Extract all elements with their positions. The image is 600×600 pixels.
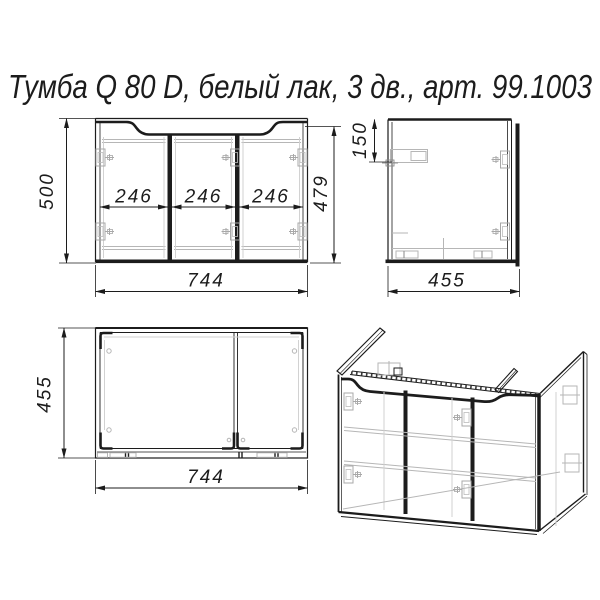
technical-drawing-page: Тумба Q 80 D, белый лак, 3 дв., арт. 99.… <box>0 0 600 600</box>
dim-top-width: 744 <box>96 460 308 494</box>
hinge-icon <box>492 223 510 240</box>
dim-door-widths: 246 246 246 <box>100 187 303 208</box>
hinge-icon <box>344 466 362 483</box>
hinge-plate-icon <box>560 386 582 472</box>
hinge-icon <box>453 409 471 426</box>
dim-front-height: 500 <box>37 119 96 264</box>
dim-top-depth: 455 <box>35 328 96 458</box>
corner-bracket-icon <box>291 333 303 349</box>
front-view: 500 479 744 246 246 246 <box>37 119 341 298</box>
hinge-icon <box>96 149 114 166</box>
dim-label-246-left: 246 <box>114 187 153 208</box>
hinge-icon <box>289 149 307 166</box>
dim-label-744-top: 744 <box>187 467 225 488</box>
dim-front-width: 744 <box>96 265 308 297</box>
corner-bracket-icon <box>238 433 250 449</box>
dim-label-744: 744 <box>187 271 225 292</box>
dim-label-479: 479 <box>311 174 332 212</box>
top-view: 455 744 <box>35 328 308 494</box>
hinge-icon <box>344 393 362 410</box>
drawing-title: Тумба Q 80 D, белый лак, 3 дв., арт. 99.… <box>8 68 593 105</box>
hinge-icon <box>289 223 307 240</box>
isometric-view <box>337 328 587 535</box>
dim-label-246-middle: 246 <box>184 187 223 208</box>
technical-drawing: Тумба Q 80 D, белый лак, 3 дв., арт. 99.… <box>0 0 600 600</box>
dim-label-455-top: 455 <box>35 375 56 413</box>
corner-bracket-icon <box>222 433 234 449</box>
dim-side-depth: 455 <box>388 266 520 297</box>
hinge-icon <box>492 151 510 168</box>
dim-label-150: 150 <box>350 121 371 159</box>
dim-label-246-right: 246 <box>251 187 290 208</box>
hinge-icon <box>96 223 114 240</box>
corner-bracket-icon <box>291 433 303 449</box>
side-view: 150 455 <box>350 120 520 298</box>
corner-bracket-icon <box>101 333 113 349</box>
corner-bracket-icon <box>101 433 113 449</box>
dim-label-500: 500 <box>37 172 58 210</box>
dim-label-455-side: 455 <box>428 271 466 292</box>
dim-side-top-inset: 150 <box>350 120 392 163</box>
dim-front-door-height: 479 <box>305 127 341 264</box>
hinge-icon <box>453 481 471 498</box>
